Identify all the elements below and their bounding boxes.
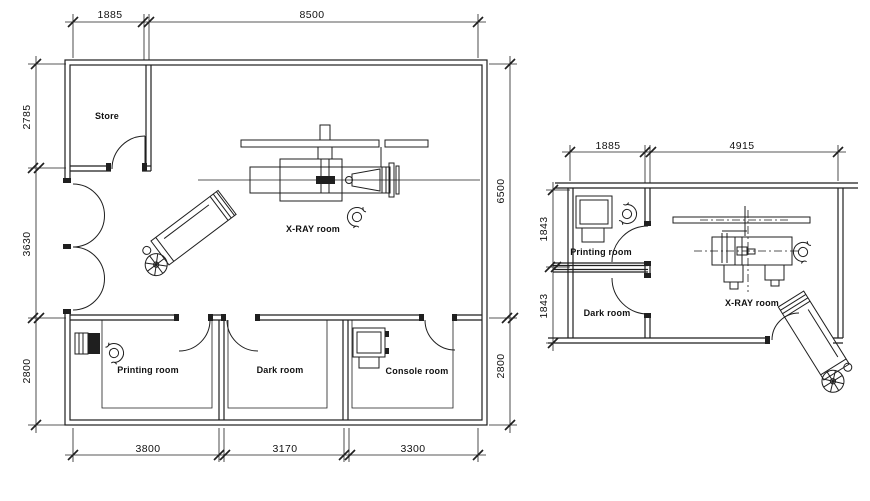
film-printer-left (75, 333, 100, 354)
dim-label: 3170 (273, 443, 298, 455)
operator-figure (343, 203, 367, 230)
dim-label: 1885 (98, 9, 123, 21)
dim-label: 1885 (596, 140, 621, 152)
room-label-store: Store (95, 111, 119, 121)
dim-label: 2800 (495, 354, 507, 379)
left-plan-dim-bottom: 3800 3170 3300 (65, 428, 486, 462)
left-plan-dim-right: 6500 2800 (489, 56, 518, 433)
technician-figure-right (618, 201, 639, 227)
right-plan: 1885 4915 1843 1843 Printing room Dark r… (538, 140, 859, 396)
left-plan: 1885 8500 2785 3630 2800 6500 28 (21, 9, 518, 462)
room-label-printing: Printing room (117, 365, 179, 375)
film-printer-right (576, 196, 612, 242)
right-plan-room-labels: Printing room Dark room X-RAY room (570, 247, 779, 318)
dim-label: 2800 (21, 359, 33, 384)
dim-label: 2785 (21, 105, 33, 130)
dim-label: 8500 (300, 9, 325, 21)
room-label-xray-right: X-RAY room (725, 298, 779, 308)
left-plan-room-outlines (102, 320, 453, 408)
console-desk (353, 328, 389, 368)
left-plan-dim-top: 1885 8500 (65, 9, 486, 60)
room-label-dark: Dark room (257, 365, 304, 375)
right-plan-walls (548, 183, 858, 345)
room-label-xray: X-RAY room (286, 224, 340, 234)
right-plan-dim-top: 1885 4915 (562, 140, 846, 183)
dim-label: 4915 (730, 140, 755, 152)
dim-label: 6500 (495, 179, 507, 204)
floorplan-drawing: 1885 8500 2785 3630 2800 6500 28 (0, 0, 870, 501)
dim-label: 3800 (136, 443, 161, 455)
left-plan-room-labels: Store X-RAY room Printing room Dark room… (95, 111, 448, 376)
floorplan-canvas: 1885 8500 2785 3630 2800 6500 28 (0, 0, 870, 501)
room-label-printing-right: Printing room (570, 247, 632, 257)
dim-label: 3300 (401, 443, 426, 455)
dim-label: 3630 (21, 232, 33, 257)
right-plan-dim-left: 1843 1843 (538, 182, 570, 351)
left-plan-dim-left: 2785 3630 2800 (21, 56, 66, 433)
dim-label: 1843 (538, 217, 550, 242)
patient-stretcher (134, 190, 238, 280)
room-label-dark-right: Dark room (584, 308, 631, 318)
operator-figure-right (791, 238, 812, 264)
room-label-console: Console room (386, 366, 449, 376)
technician-figure-left (104, 339, 126, 366)
dim-label: 1843 (538, 294, 550, 319)
xray-equipment-left (134, 125, 480, 280)
